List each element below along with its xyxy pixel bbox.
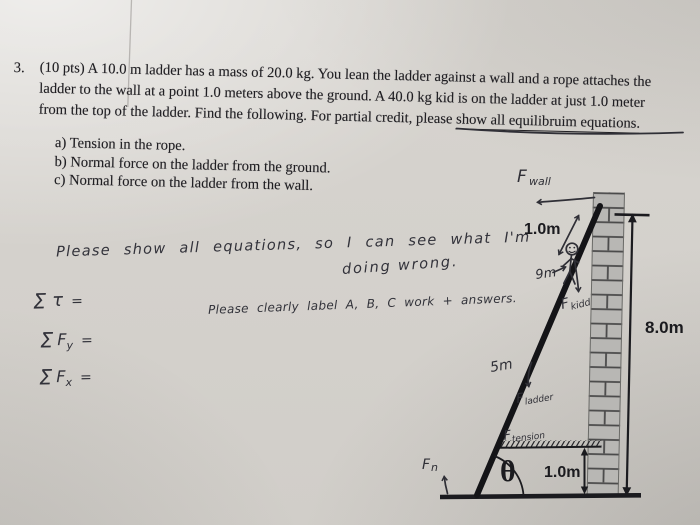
ladder-diagram: θ 1.0m 1.0m 8.0m: [0, 0, 700, 525]
svg-text:F: F: [422, 457, 431, 473]
theta-label: θ: [500, 455, 516, 488]
hand-annotations: [444, 198, 594, 494]
worksheet-photo: 3. (10 pts) A 10.0 m ladder has a mass o…: [0, 0, 700, 525]
f-wall-arrow: [538, 198, 595, 203]
ground-line: [440, 495, 641, 497]
wall-height-label: 8.0m: [645, 318, 684, 337]
paper-crease: [128, 0, 132, 107]
rope-height-measure: [581, 448, 588, 494]
f-n-arrow: [444, 477, 447, 494]
rope-height-label: 1.0m: [544, 464, 580, 481]
svg-text:n: n: [431, 461, 438, 474]
f-wall-label: F wall: [517, 167, 551, 188]
kid-distance-label: 9m: [534, 265, 557, 283]
svg-text:ladder: ladder: [524, 392, 555, 407]
mid-distance-label: 5m: [489, 356, 514, 376]
svg-text:kidd: kidd: [570, 297, 593, 313]
f-n-label: F n: [422, 457, 438, 474]
top-segment-arrow: [559, 216, 579, 255]
brick-wall: [587, 192, 650, 497]
svg-text:F: F: [517, 167, 527, 187]
hand-underline: [457, 129, 684, 134]
ladder-line: [477, 206, 600, 495]
top-segment-label: 1.0m: [524, 221, 560, 238]
svg-text:wall: wall: [529, 175, 551, 188]
